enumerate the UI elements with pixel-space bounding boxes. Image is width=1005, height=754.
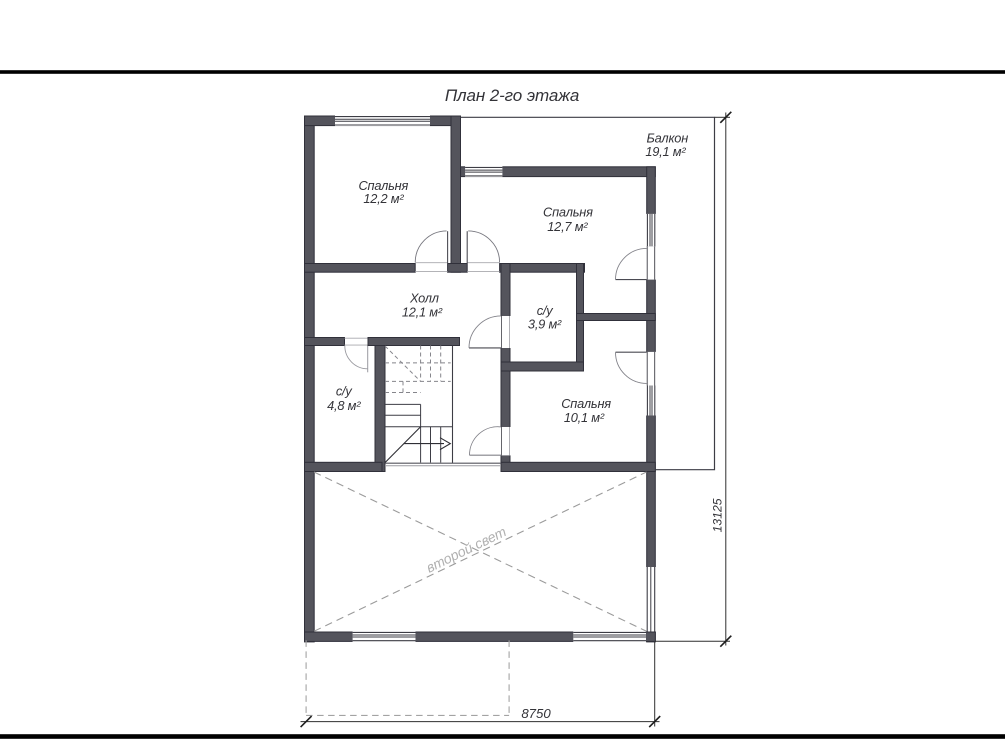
svg-text:с/у: с/у	[336, 384, 354, 399]
svg-text:4,8 м²: 4,8 м²	[327, 398, 361, 413]
svg-text:19,1 м²: 19,1 м²	[645, 144, 686, 159]
svg-text:Спальня: Спальня	[543, 204, 593, 219]
svg-text:План 2-го этажа: План 2-го этажа	[445, 86, 579, 105]
svg-text:с/у: с/у	[537, 303, 555, 318]
svg-text:Спальня: Спальня	[561, 396, 611, 411]
svg-text:8750: 8750	[521, 706, 551, 721]
svg-text:10,1 м²: 10,1 м²	[564, 410, 605, 425]
svg-text:12,2 м²: 12,2 м²	[363, 191, 404, 206]
svg-text:3,9 м²: 3,9 м²	[528, 317, 562, 332]
svg-text:12,7 м²: 12,7 м²	[547, 219, 588, 234]
svg-text:12,1 м²: 12,1 м²	[402, 304, 443, 319]
svg-text:13125: 13125	[711, 498, 725, 532]
svg-text:Холл: Холл	[409, 290, 439, 305]
